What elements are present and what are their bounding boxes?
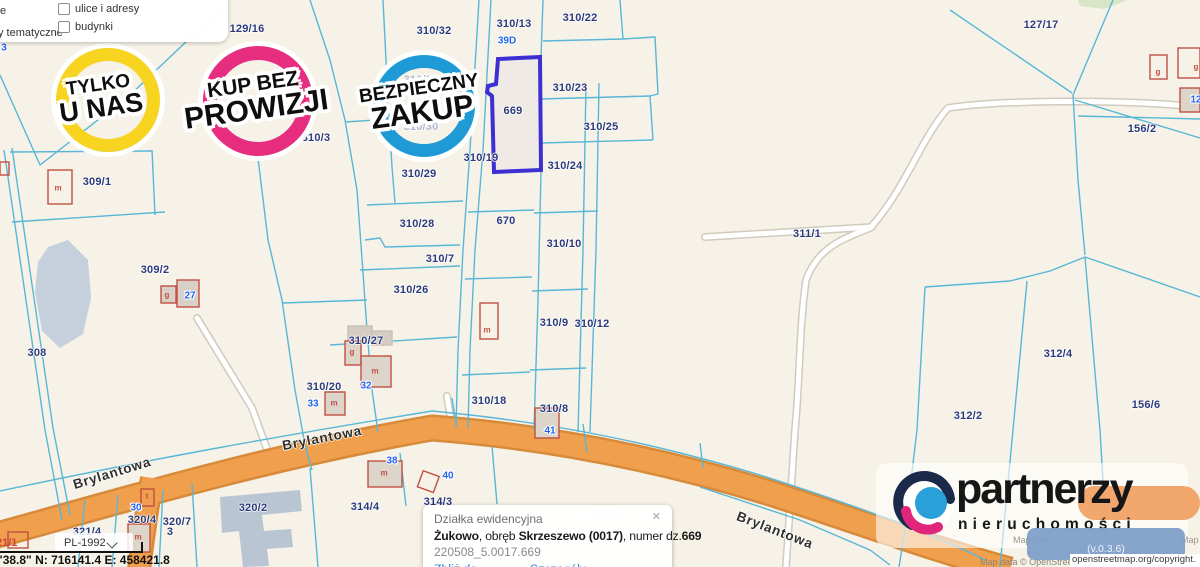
popup-text: , obręb (479, 529, 519, 543)
parcel-label-310-7: 310/7 (426, 253, 455, 265)
address-label-27: 27 (184, 291, 195, 302)
parcel-label-310-26: 310/26 (394, 284, 429, 296)
parcel-label-310-32: 310/32 (417, 25, 452, 37)
address-label-33: 33 (307, 399, 318, 410)
parcel-label-669: 669 (504, 105, 523, 117)
parcel-label-310-13: 310/13 (497, 18, 532, 30)
parcel-label-309-1: 309/1 (83, 176, 112, 188)
parcel-label-310-23: 310/23 (553, 82, 588, 94)
road-label-Brylantowa: Brylantowa (281, 423, 363, 453)
parcel-label-312-4: 312/4 (1044, 348, 1073, 360)
crs-value: PL-1992 (64, 537, 106, 549)
address-label-39D: 39D (498, 36, 516, 47)
layers-panel: e y tematyczne ulice i adresy budynki (0, 0, 228, 42)
building-letter-t: t (146, 492, 149, 501)
parcel-label-670: 670 (497, 215, 516, 227)
parcel-label-156-2: 156/2 (1128, 123, 1157, 135)
red-parcel-label: 21/1 (0, 537, 17, 549)
crs-selector[interactable]: PL-1992 (55, 533, 133, 552)
popup-municipality: Żukowo (434, 529, 479, 543)
building-letter-g: g (165, 291, 170, 300)
popup-title: Działka ewidencyjna (434, 512, 543, 526)
building-letter-g: g (350, 348, 355, 357)
parcel-label-308: 308 (28, 347, 47, 359)
address-label-12: 12 (1190, 95, 1200, 106)
popup-parcel-number: 669 (682, 529, 702, 543)
parcel-label-310-28: 310/28 (400, 218, 435, 230)
building-letter-m: m (134, 533, 141, 542)
building-letter-m: m (380, 469, 387, 478)
parcel-label-311-1: 311/1 (793, 228, 821, 240)
brand-name: partnerzy (956, 468, 1132, 511)
building-letter-m: m (330, 399, 337, 408)
parcel-label-320-2: 320/2 (239, 502, 268, 514)
parcel-label-129-16: 129/16 (230, 23, 265, 35)
checkbox-row-ulice[interactable]: ulice i adresy (58, 3, 139, 15)
parcel-info-popup: Działka ewidencyjna ✕ Żukowo, obręb Skrz… (423, 505, 672, 567)
parcel-label-320-4: 320/4 (128, 514, 157, 526)
badge-tylko-u-nas: TYLKO U NAS (56, 48, 160, 152)
parcel-label-310-8: 310/8 (540, 403, 569, 415)
parcel-label-310-27: 310/27 (349, 335, 384, 347)
building-letter-g: g (1156, 68, 1161, 77)
parcel-label-309-2: 309/2 (141, 264, 170, 276)
parcel-label-314-4: 314/4 (351, 501, 380, 513)
map-viewport[interactable]: 129/16310/32310/13310/22310/23310/25310/… (0, 0, 1200, 567)
coordinates-readout: "38.8" N: 716141.4 E: 458421.8 (0, 553, 170, 567)
popup-district: Skrzeszewo (0017) (519, 529, 623, 543)
badge-bezpieczny-zakup: BEZPIECZNY ZAKUP (373, 55, 475, 157)
address-label-30: 30 (130, 503, 141, 514)
checkbox-label: budynki (75, 21, 113, 33)
parcel-label-156-6: 156/6 (1132, 399, 1161, 411)
building-letter-m: m (483, 326, 490, 335)
parcel-label-310-24: 310/24 (548, 160, 583, 172)
parcel-label-127-17: 127/17 (1024, 19, 1059, 31)
parcel-label-310-12: 310/12 (575, 318, 610, 330)
badge-kup-bez-prowizji: KUP BEZ PROWIZJI (203, 46, 313, 156)
parcel-label-310-20: 310/20 (307, 381, 342, 393)
address-label-38: 38 (386, 456, 397, 467)
address-label-40: 40 (442, 471, 453, 482)
popup-parcel-id: 220508_5.0017.669 (434, 545, 661, 559)
partnerzy-logo-icon (890, 469, 962, 541)
panel-fragment: e (0, 5, 6, 17)
details-link[interactable]: Szczegóły (I) (530, 562, 600, 567)
scale-bar-tick (141, 542, 143, 553)
address-label-32: 32 (360, 381, 371, 392)
building-letter-m: m (54, 184, 61, 193)
address-label-41: 41 (544, 426, 555, 437)
building-letter-g: g (1194, 63, 1199, 72)
checkbox-row-budynki[interactable]: budynki (58, 21, 113, 33)
popup-text: , numer dz. (623, 529, 682, 543)
checkbox-budynki[interactable] (58, 21, 70, 33)
parcel-label-312-2: 312/2 (954, 410, 983, 422)
road-label-Brylantowa: Brylantowa (71, 454, 153, 492)
parcel-label-310-22: 310/22 (563, 12, 598, 24)
parcel-label-310-10: 310/10 (547, 238, 582, 250)
address-label-3: 3 (1, 43, 7, 54)
close-icon[interactable]: ✕ (652, 512, 661, 523)
building-letter-m: m (371, 367, 378, 376)
parcel-label-310-18: 310/18 (472, 395, 507, 407)
popup-parcel-description: Żukowo, obręb Skrzeszewo (0017), numer d… (434, 529, 661, 543)
checkbox-label: ulice i adresy (75, 3, 139, 15)
parcel-label-310-9: 310/9 (540, 317, 569, 329)
parcel-label-310-29: 310/29 (402, 168, 437, 180)
parcel-label-310-25: 310/25 (584, 121, 619, 133)
checkbox-ulice-i-adresy[interactable] (58, 3, 70, 15)
osm-copyright-link[interactable]: openstreetmap.org/copyright. (1070, 554, 1200, 567)
zoom-to-object-link[interactable]: Zbliż do obiektu (434, 562, 519, 567)
road-label-Brylantowa: Brylantowa (735, 509, 816, 552)
panel-fragment-tematyczne: y tematyczne (0, 27, 63, 39)
parcel-label-3: 3 (167, 526, 173, 538)
